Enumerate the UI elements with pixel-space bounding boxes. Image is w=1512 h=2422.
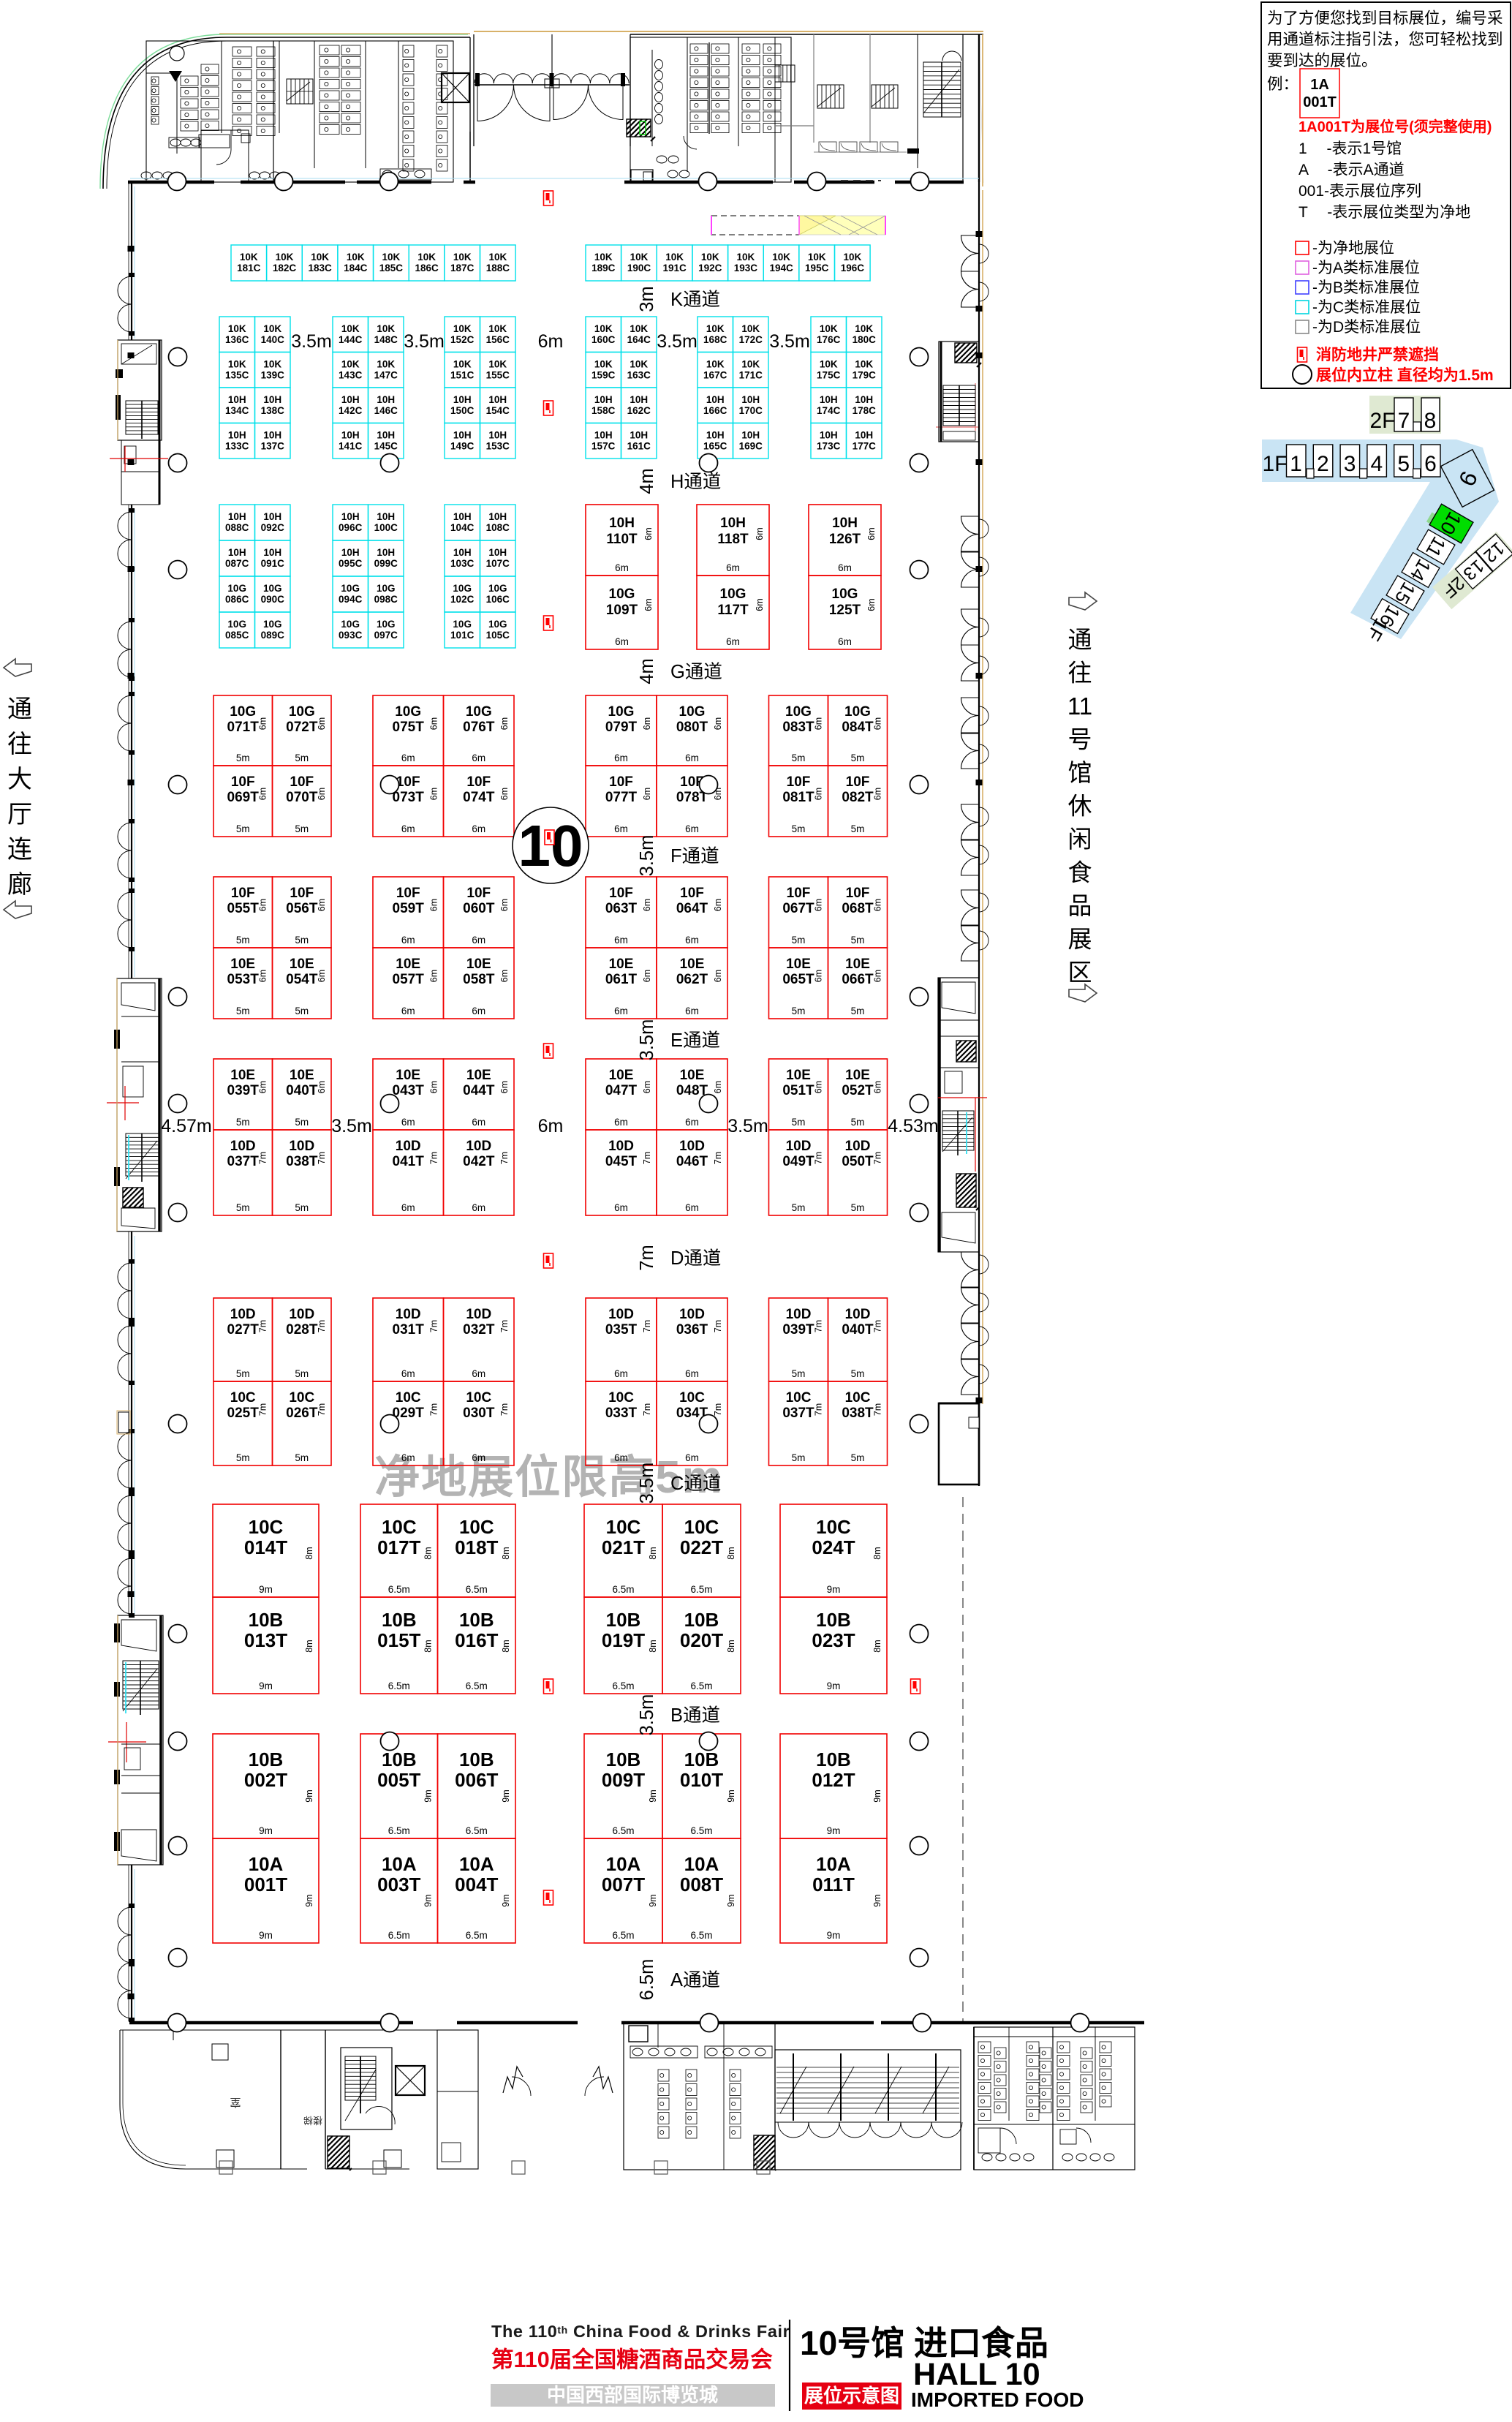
- svg-text:8m: 8m: [726, 1640, 736, 1652]
- svg-text:7m: 7m: [814, 1320, 824, 1332]
- svg-text:10F: 10F: [680, 886, 704, 901]
- svg-text:7m: 7m: [429, 1152, 439, 1164]
- svg-text:9m: 9m: [872, 1894, 882, 1906]
- svg-text:为了方便您找到目标展位，编号采: 为了方便您找到目标展位，编号采: [1267, 10, 1503, 27]
- svg-text:6m: 6m: [317, 717, 327, 730]
- svg-text:9m: 9m: [423, 1894, 434, 1906]
- svg-text:6m: 6m: [614, 935, 628, 946]
- svg-text:10K: 10K: [488, 323, 507, 334]
- svg-text:7m: 7m: [317, 1403, 327, 1416]
- svg-text:10H: 10H: [341, 394, 360, 405]
- svg-text:021T: 021T: [602, 1536, 645, 1558]
- svg-text:6m: 6m: [814, 899, 824, 911]
- svg-text:1A001T为展位号(须完整使用): 1A001T为展位号(须完整使用): [1299, 118, 1492, 135]
- svg-text:8m: 8m: [501, 1547, 511, 1559]
- svg-text:10D: 10D: [608, 1139, 634, 1154]
- svg-text:-为A类标准展位: -为A类标准展位: [1312, 260, 1420, 276]
- svg-text:1: 1: [1290, 452, 1302, 476]
- svg-text:142C: 142C: [339, 405, 363, 416]
- svg-text:9m: 9m: [423, 1789, 434, 1802]
- svg-text:060T: 060T: [463, 901, 495, 916]
- svg-text:6m: 6m: [755, 598, 765, 611]
- svg-text:141C: 141C: [339, 441, 363, 452]
- svg-text:食: 食: [1068, 859, 1092, 886]
- svg-text:区: 区: [1068, 959, 1092, 986]
- svg-text:10H: 10H: [341, 430, 360, 441]
- svg-text:083T: 083T: [782, 720, 814, 735]
- svg-text:9m: 9m: [304, 1894, 314, 1906]
- svg-text:10H: 10H: [706, 394, 725, 405]
- svg-text:10F: 10F: [231, 774, 255, 790]
- svg-text:10K: 10K: [844, 252, 862, 263]
- svg-text:10K: 10K: [228, 323, 246, 334]
- svg-text:5m: 5m: [792, 1452, 806, 1463]
- svg-text:7m: 7m: [713, 1403, 723, 1416]
- svg-text:7m: 7m: [499, 1320, 510, 1332]
- svg-text:10H: 10H: [377, 547, 395, 558]
- svg-text:10E: 10E: [230, 957, 255, 972]
- svg-text:10K: 10K: [808, 252, 826, 263]
- svg-text:5m: 5m: [792, 1202, 806, 1213]
- svg-text:9m: 9m: [259, 1930, 273, 1941]
- svg-text:8m: 8m: [423, 1640, 434, 1652]
- svg-text:6.5m: 6.5m: [466, 1680, 488, 1691]
- svg-text:5m: 5m: [851, 935, 865, 946]
- svg-text:041T: 041T: [393, 1154, 425, 1169]
- svg-text:10K: 10K: [706, 323, 725, 334]
- svg-text:096C: 096C: [339, 522, 363, 533]
- svg-text:067T: 067T: [782, 901, 814, 916]
- svg-text:展位示意图: 展位示意图: [804, 2385, 899, 2407]
- svg-text:038T: 038T: [842, 1406, 874, 1421]
- svg-text:10K: 10K: [453, 323, 472, 334]
- svg-text:8m: 8m: [648, 1640, 658, 1652]
- svg-text:10E: 10E: [609, 1068, 634, 1083]
- svg-text:10E: 10E: [396, 957, 420, 972]
- svg-text:10D: 10D: [289, 1139, 314, 1154]
- svg-text:10H: 10H: [263, 430, 281, 441]
- svg-text:163C: 163C: [627, 370, 651, 381]
- svg-text:10H: 10H: [594, 430, 613, 441]
- svg-text:196C: 196C: [841, 263, 865, 273]
- svg-text:6m: 6m: [258, 717, 268, 730]
- svg-text:161C: 161C: [627, 441, 651, 452]
- svg-text:10K: 10K: [453, 359, 472, 370]
- svg-text:5m: 5m: [295, 1006, 309, 1016]
- svg-text:5: 5: [1397, 452, 1410, 476]
- svg-text:5m: 5m: [295, 935, 309, 946]
- svg-text:9m: 9m: [501, 1894, 511, 1906]
- svg-text:081T: 081T: [782, 790, 814, 805]
- svg-text:065T: 065T: [782, 972, 814, 987]
- svg-text:153C: 153C: [486, 441, 510, 452]
- svg-text:001T: 001T: [244, 1874, 287, 1895]
- svg-text:10: 10: [518, 813, 583, 878]
- svg-text:7m: 7m: [642, 1320, 652, 1332]
- svg-text:10B: 10B: [816, 1609, 851, 1631]
- svg-text:10K: 10K: [377, 359, 395, 370]
- svg-text:6m: 6m: [685, 752, 699, 763]
- svg-text:030T: 030T: [463, 1406, 495, 1421]
- svg-text:10H: 10H: [228, 511, 246, 522]
- svg-text:10G: 10G: [395, 704, 421, 720]
- svg-text:6m: 6m: [538, 331, 564, 352]
- svg-text:9m: 9m: [304, 1789, 314, 1802]
- svg-text:用通道标注指引法，您可轻松找到: 用通道标注指引法，您可轻松找到: [1267, 31, 1503, 48]
- svg-text:10D: 10D: [679, 1139, 705, 1154]
- svg-text:-为D类标准展位: -为D类标准展位: [1312, 319, 1421, 336]
- svg-text:10C: 10C: [382, 1516, 417, 1538]
- svg-text:184C: 184C: [344, 263, 368, 273]
- svg-text:5m: 5m: [792, 752, 806, 763]
- svg-text:5m: 5m: [295, 1452, 309, 1463]
- svg-text:106C: 106C: [486, 594, 510, 605]
- svg-text:5m: 5m: [851, 1452, 865, 1463]
- svg-text:027T: 027T: [227, 1322, 260, 1338]
- svg-text:10G: 10G: [609, 586, 635, 602]
- svg-text:10C: 10C: [396, 1390, 421, 1406]
- svg-text:157C: 157C: [591, 441, 616, 452]
- svg-text:028T: 028T: [286, 1322, 318, 1338]
- svg-text:082T: 082T: [842, 790, 874, 805]
- svg-text:厅: 厅: [7, 801, 32, 829]
- svg-text:10F: 10F: [290, 774, 314, 790]
- svg-text:10E: 10E: [290, 1068, 314, 1083]
- svg-text:7m: 7m: [317, 1152, 327, 1164]
- svg-text:品: 品: [1068, 892, 1092, 919]
- svg-text:7m: 7m: [642, 1403, 652, 1416]
- svg-text:039T: 039T: [782, 1322, 814, 1338]
- svg-text:7m: 7m: [873, 1152, 883, 1164]
- svg-text:6m: 6m: [317, 788, 327, 800]
- svg-text:10C: 10C: [459, 1516, 494, 1538]
- svg-text:5m: 5m: [236, 935, 250, 946]
- svg-text:6.5m: 6.5m: [690, 1680, 712, 1691]
- svg-text:休: 休: [1068, 793, 1092, 820]
- svg-text:015T: 015T: [377, 1629, 420, 1651]
- svg-text:6m: 6m: [838, 636, 852, 647]
- svg-text:10H: 10H: [741, 430, 760, 441]
- svg-text:7m: 7m: [258, 1320, 268, 1332]
- svg-text:133C: 133C: [225, 441, 249, 452]
- svg-text:10F: 10F: [787, 774, 811, 790]
- svg-text:6m: 6m: [472, 1368, 485, 1379]
- svg-text:022T: 022T: [680, 1536, 723, 1558]
- svg-text:8m: 8m: [423, 1547, 434, 1559]
- svg-text:10H: 10H: [377, 394, 395, 405]
- svg-text:018T: 018T: [455, 1536, 498, 1558]
- svg-text:6.5m: 6.5m: [388, 1680, 410, 1691]
- svg-text:042T: 042T: [463, 1154, 495, 1169]
- svg-text:往: 往: [7, 731, 32, 758]
- svg-text:6m: 6m: [873, 899, 883, 911]
- svg-text:051T: 051T: [782, 1083, 814, 1098]
- svg-text:10K: 10K: [228, 359, 246, 370]
- svg-text:071T: 071T: [227, 720, 260, 735]
- svg-text:10K: 10K: [311, 252, 329, 263]
- svg-text:大: 大: [7, 766, 32, 793]
- svg-text:10H: 10H: [820, 430, 838, 441]
- svg-text:10G: 10G: [832, 586, 858, 602]
- svg-text:6m: 6m: [538, 1116, 564, 1136]
- svg-text:10K: 10K: [630, 323, 648, 334]
- svg-text:6m: 6m: [499, 788, 510, 800]
- svg-text:150C: 150C: [450, 405, 475, 416]
- svg-text:5m: 5m: [851, 1006, 865, 1016]
- svg-text:013T: 013T: [244, 1629, 287, 1651]
- svg-text:A -表示A通道: A -表示A通道: [1299, 162, 1405, 178]
- svg-text:4m: 4m: [637, 658, 657, 684]
- svg-text:035T: 035T: [605, 1322, 638, 1338]
- svg-text:155C: 155C: [486, 370, 510, 381]
- svg-text:10D: 10D: [608, 1307, 634, 1322]
- svg-text:6m: 6m: [614, 1452, 628, 1463]
- svg-text:152C: 152C: [450, 334, 475, 345]
- svg-text:143C: 143C: [339, 370, 363, 381]
- svg-text:10A: 10A: [606, 1853, 641, 1875]
- svg-text:10A: 10A: [249, 1853, 284, 1875]
- svg-text:036T: 036T: [676, 1322, 708, 1338]
- svg-text:6.5m: 6.5m: [612, 1930, 634, 1941]
- svg-text:5m: 5m: [236, 1117, 250, 1128]
- svg-text:091C: 091C: [261, 558, 285, 569]
- svg-text:10D: 10D: [466, 1139, 491, 1154]
- svg-text:10H: 10H: [855, 394, 873, 405]
- svg-text:10E: 10E: [396, 1068, 420, 1083]
- svg-text:068T: 068T: [842, 901, 874, 916]
- svg-text:173C: 173C: [817, 441, 841, 452]
- svg-text:6m: 6m: [401, 752, 415, 763]
- svg-text:10H: 10H: [341, 547, 360, 558]
- svg-text:通: 通: [7, 695, 32, 723]
- svg-text:5m: 5m: [792, 935, 806, 946]
- svg-text:8m: 8m: [501, 1640, 511, 1652]
- svg-text:10G: 10G: [289, 704, 315, 720]
- svg-text:10E: 10E: [845, 957, 870, 972]
- svg-text:063T: 063T: [605, 901, 638, 916]
- svg-text:6m: 6m: [401, 1117, 415, 1128]
- svg-text:IMPORTED FOOD: IMPORTED FOOD: [911, 2388, 1084, 2411]
- svg-text:10H: 10H: [453, 394, 472, 405]
- svg-text:166C: 166C: [703, 405, 727, 416]
- svg-text:6m: 6m: [472, 823, 485, 834]
- svg-text:10K: 10K: [594, 359, 613, 370]
- svg-text:7: 7: [1398, 409, 1410, 433]
- svg-text:174C: 174C: [817, 405, 841, 416]
- svg-text:10G: 10G: [377, 583, 396, 594]
- svg-text:HALL 10: HALL 10: [913, 2357, 1040, 2392]
- svg-text:164C: 164C: [627, 334, 651, 345]
- svg-text:055T: 055T: [227, 901, 260, 916]
- svg-text:6m: 6m: [685, 1368, 699, 1379]
- svg-text:-为净地展位: -为净地展位: [1312, 240, 1394, 257]
- svg-text:101C: 101C: [450, 630, 475, 641]
- svg-text:10B: 10B: [382, 1609, 417, 1631]
- svg-text:6m: 6m: [685, 1006, 699, 1016]
- svg-text:6.5m: 6.5m: [388, 1584, 410, 1595]
- svg-text:6m: 6m: [642, 970, 652, 982]
- svg-text:165C: 165C: [703, 441, 727, 452]
- svg-text:9m: 9m: [827, 1584, 841, 1595]
- svg-text:180C: 180C: [853, 334, 877, 345]
- svg-text:6.5m: 6.5m: [466, 1584, 488, 1595]
- svg-text:10K: 10K: [276, 252, 294, 263]
- svg-text:10H: 10H: [263, 511, 281, 522]
- svg-text:074T: 074T: [463, 790, 495, 805]
- svg-text:10B: 10B: [606, 1748, 641, 1770]
- svg-text:4.57m: 4.57m: [161, 1116, 211, 1136]
- svg-text:088C: 088C: [225, 522, 249, 533]
- svg-text:5m: 5m: [236, 1368, 250, 1379]
- svg-text:10K: 10K: [382, 252, 401, 263]
- svg-text:6m: 6m: [726, 636, 740, 647]
- svg-text:7m: 7m: [499, 1152, 510, 1164]
- svg-text:033T: 033T: [605, 1406, 638, 1421]
- svg-text:073T: 073T: [393, 790, 425, 805]
- svg-text:6m: 6m: [726, 562, 740, 573]
- svg-text:5m: 5m: [792, 1117, 806, 1128]
- svg-text:178C: 178C: [853, 405, 877, 416]
- svg-text:闲: 闲: [1068, 826, 1092, 853]
- svg-text:3.5m: 3.5m: [291, 331, 332, 352]
- svg-text:061T: 061T: [605, 972, 638, 987]
- svg-text:11: 11: [1067, 693, 1092, 720]
- svg-text:7m: 7m: [873, 1403, 883, 1416]
- svg-text:4: 4: [1371, 452, 1383, 476]
- svg-text:10H: 10H: [855, 430, 873, 441]
- svg-text:6m: 6m: [838, 562, 852, 573]
- svg-text:6m: 6m: [713, 899, 723, 911]
- svg-text:102C: 102C: [450, 594, 475, 605]
- svg-text:10K: 10K: [594, 323, 613, 334]
- svg-text:117T: 117T: [717, 603, 749, 618]
- svg-text:10K: 10K: [706, 359, 725, 370]
- svg-text:G通道: G通道: [670, 662, 722, 682]
- svg-text:10G: 10G: [844, 704, 871, 720]
- svg-text:3.5m: 3.5m: [404, 331, 445, 352]
- svg-text:147C: 147C: [374, 370, 398, 381]
- svg-text:通: 通: [1068, 626, 1092, 653]
- svg-text:097C: 097C: [374, 630, 398, 641]
- svg-text:10C: 10C: [684, 1516, 719, 1538]
- svg-text:6m: 6m: [258, 970, 268, 982]
- svg-text:10K: 10K: [820, 359, 838, 370]
- svg-text:The 110th China Food & Drinks: The 110th China Food & Drinks Fair: [491, 2322, 790, 2341]
- svg-text:047T: 047T: [605, 1083, 638, 1098]
- svg-text:7m: 7m: [713, 1320, 723, 1332]
- svg-text:6.5m: 6.5m: [690, 1584, 712, 1595]
- svg-text:10K: 10K: [240, 252, 258, 263]
- svg-text:-为B类标准展位: -为B类标准展位: [1312, 279, 1420, 296]
- svg-text:093C: 093C: [339, 630, 363, 641]
- svg-text:10E: 10E: [680, 957, 705, 972]
- svg-text:6.5m: 6.5m: [466, 1930, 488, 1941]
- svg-text:2F: 2F: [1369, 409, 1395, 433]
- svg-text:10H: 10H: [341, 511, 360, 522]
- svg-text:151C: 151C: [450, 370, 475, 381]
- svg-text:175C: 175C: [817, 370, 841, 381]
- svg-text:3m: 3m: [637, 286, 657, 312]
- svg-text:044T: 044T: [463, 1083, 495, 1098]
- svg-text:006T: 006T: [455, 1769, 498, 1791]
- svg-text:6m: 6m: [685, 935, 699, 946]
- svg-text:10K: 10K: [820, 323, 838, 334]
- svg-text:馆: 馆: [1068, 759, 1092, 786]
- svg-text:10H: 10H: [453, 547, 472, 558]
- svg-text:10C: 10C: [230, 1390, 256, 1406]
- svg-text:069T: 069T: [227, 790, 260, 805]
- svg-text:108C: 108C: [486, 522, 510, 533]
- svg-text:6m: 6m: [258, 1081, 268, 1093]
- svg-text:-为C类标准展位: -为C类标准展位: [1312, 299, 1421, 316]
- svg-text:193C: 193C: [734, 263, 758, 273]
- svg-text:6m: 6m: [614, 1202, 628, 1213]
- svg-text:160C: 160C: [591, 334, 616, 345]
- svg-text:5m: 5m: [295, 1202, 309, 1213]
- svg-text:10B: 10B: [459, 1748, 494, 1770]
- svg-text:10D: 10D: [845, 1139, 871, 1154]
- svg-text:6m: 6m: [873, 788, 883, 800]
- svg-text:6m: 6m: [615, 562, 629, 573]
- svg-text:144C: 144C: [339, 334, 363, 345]
- svg-text:8m: 8m: [304, 1547, 314, 1559]
- svg-text:10F: 10F: [609, 886, 633, 901]
- svg-text:3: 3: [1344, 452, 1356, 476]
- svg-text:6m: 6m: [713, 717, 723, 730]
- svg-text:10H: 10H: [263, 547, 281, 558]
- svg-text:10G: 10G: [466, 704, 492, 720]
- svg-text:10B: 10B: [382, 1748, 417, 1770]
- svg-text:085C: 085C: [225, 630, 249, 641]
- svg-text:6.5m: 6.5m: [466, 1825, 488, 1836]
- svg-text:10F: 10F: [787, 886, 811, 901]
- svg-text:5m: 5m: [851, 823, 865, 834]
- svg-text:10H: 10H: [488, 547, 507, 558]
- svg-text:099C: 099C: [374, 558, 398, 569]
- svg-text:9m: 9m: [259, 1825, 273, 1836]
- svg-text:158C: 158C: [591, 405, 616, 416]
- svg-text:4.53m: 4.53m: [888, 1116, 938, 1136]
- svg-text:094C: 094C: [339, 594, 363, 605]
- svg-text:182C: 182C: [273, 263, 297, 273]
- svg-text:10H: 10H: [377, 430, 395, 441]
- svg-text:号: 号: [1068, 726, 1092, 753]
- svg-text:10B: 10B: [459, 1609, 494, 1631]
- svg-text:6m: 6m: [317, 899, 327, 911]
- svg-text:6m: 6m: [614, 823, 628, 834]
- svg-text:7m: 7m: [499, 1403, 510, 1416]
- svg-text:10D: 10D: [466, 1307, 491, 1322]
- svg-text:7m: 7m: [429, 1320, 439, 1332]
- svg-text:6m: 6m: [472, 1006, 485, 1016]
- svg-text:6m: 6m: [685, 823, 699, 834]
- svg-text:10D: 10D: [845, 1307, 871, 1322]
- svg-text:6m: 6m: [814, 788, 824, 800]
- svg-text:10C: 10C: [466, 1390, 491, 1406]
- svg-text:005T: 005T: [377, 1769, 420, 1791]
- svg-text:003T: 003T: [377, 1874, 420, 1895]
- svg-text:10K: 10K: [741, 323, 760, 334]
- svg-text:7m: 7m: [814, 1403, 824, 1416]
- svg-text:10F: 10F: [290, 886, 314, 901]
- svg-text:10C: 10C: [249, 1516, 284, 1538]
- svg-text:154C: 154C: [486, 405, 510, 416]
- svg-text:10G: 10G: [230, 704, 256, 720]
- svg-text:6m: 6m: [258, 788, 268, 800]
- svg-text:10B: 10B: [816, 1748, 851, 1770]
- svg-text:10K: 10K: [341, 359, 360, 370]
- svg-text:177C: 177C: [853, 441, 877, 452]
